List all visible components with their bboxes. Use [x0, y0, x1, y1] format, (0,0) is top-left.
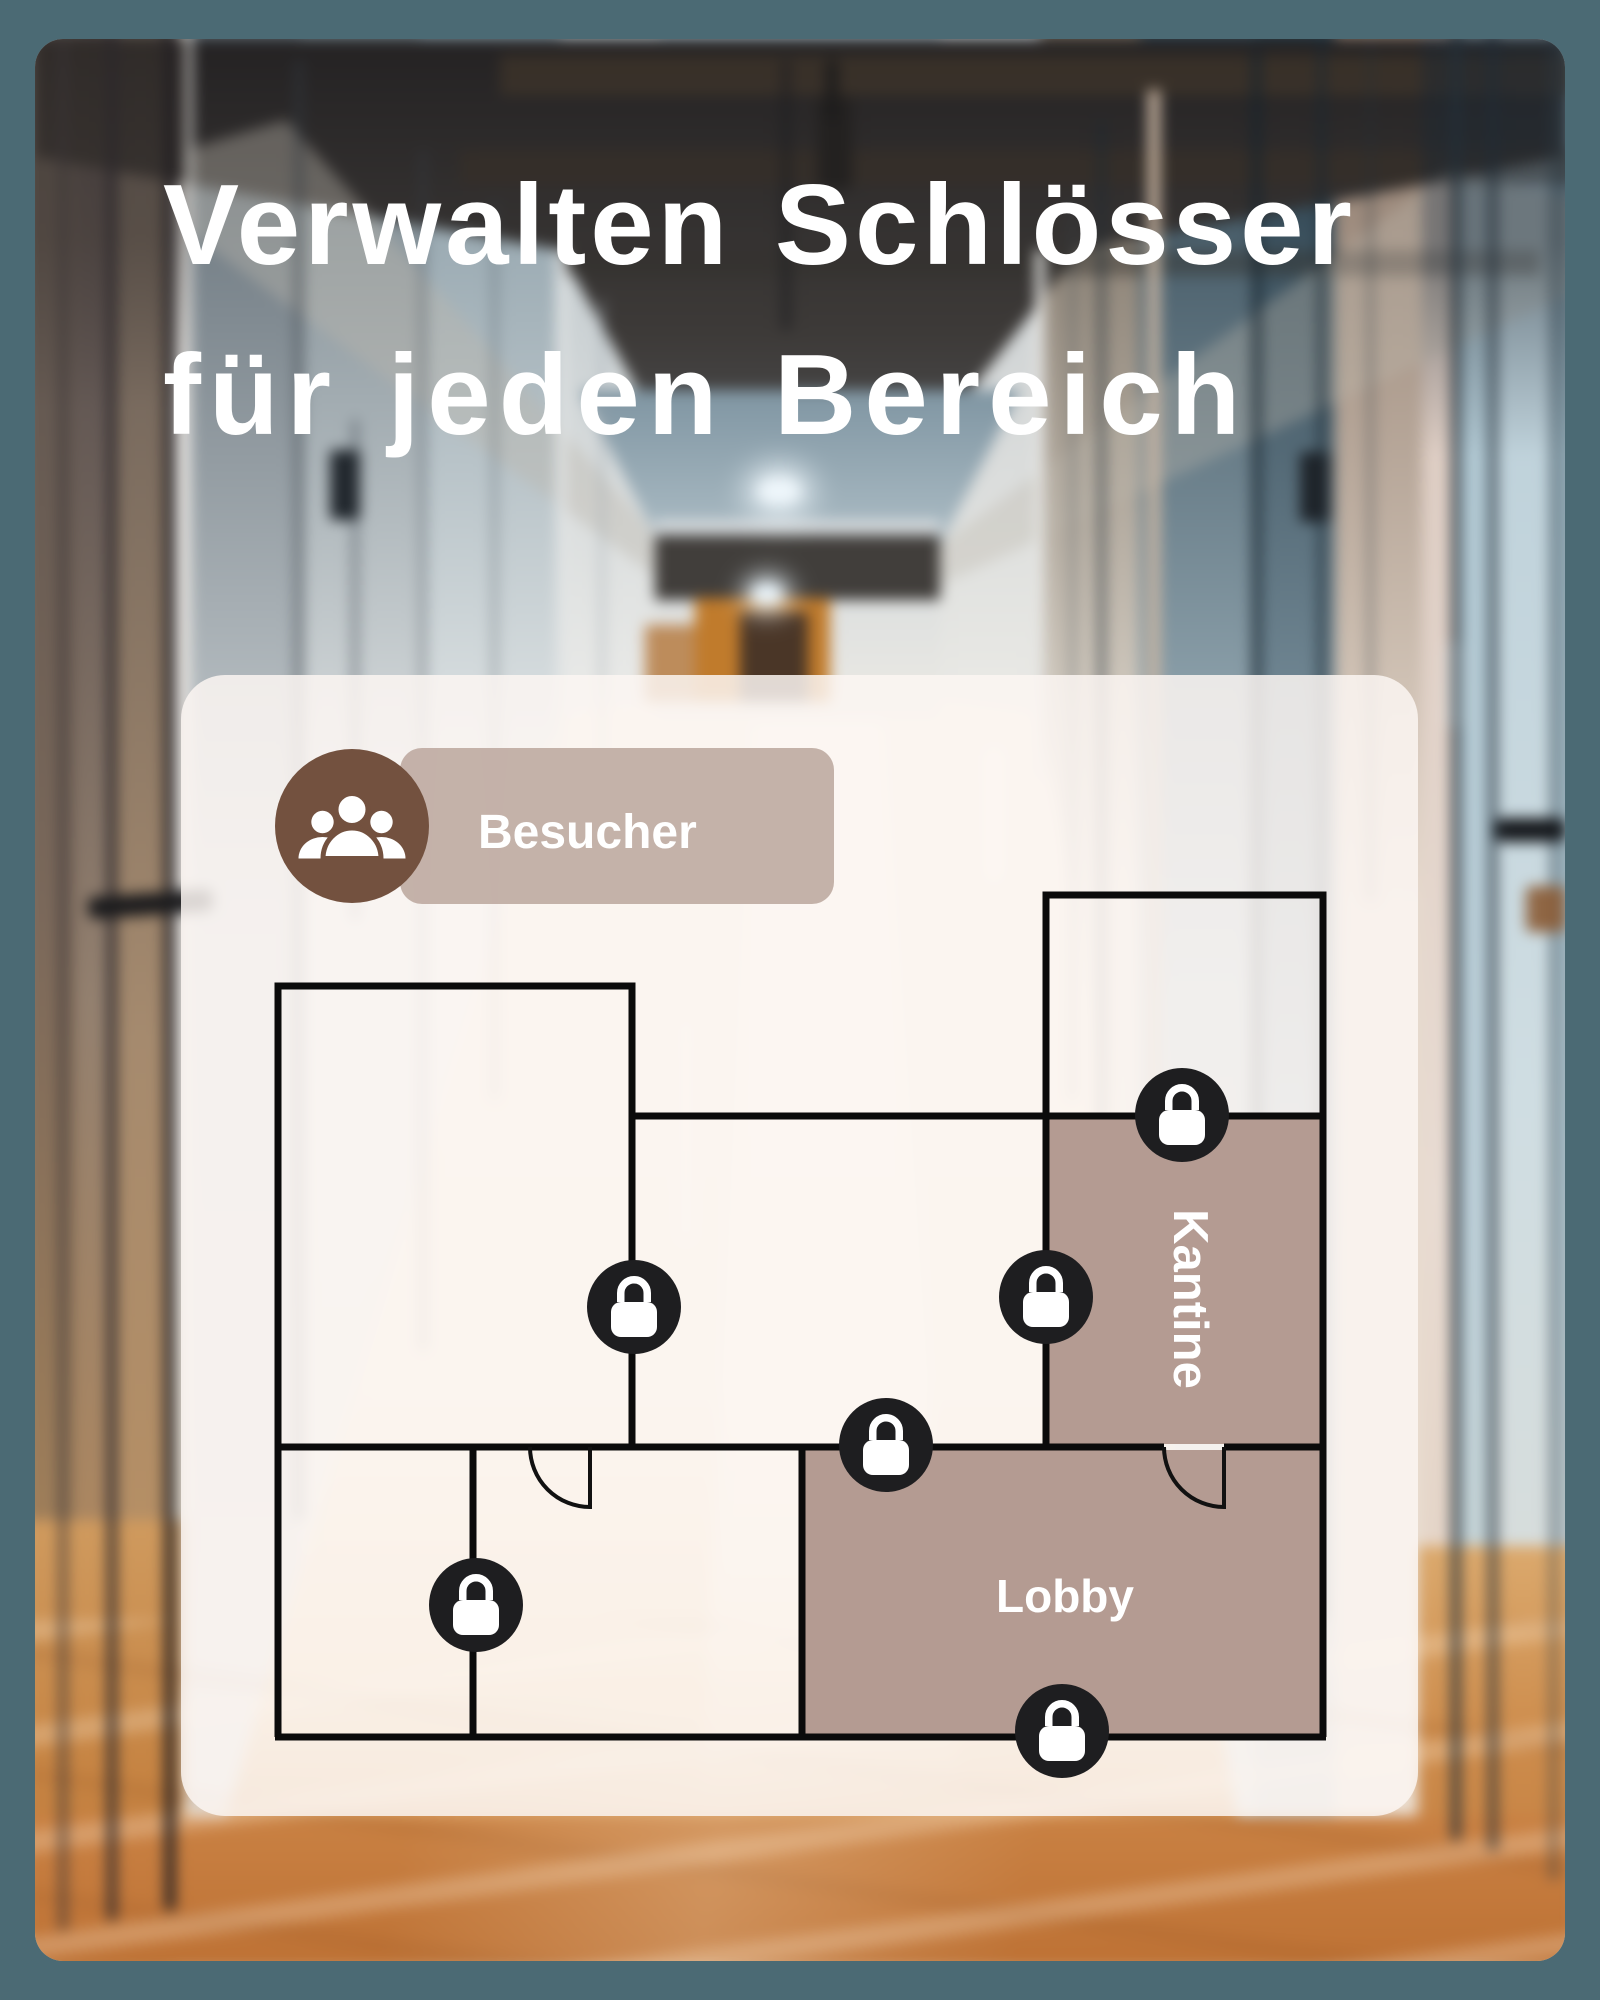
- svg-text:Kantine: Kantine: [1163, 1209, 1217, 1389]
- svg-text:Lobby: Lobby: [996, 1570, 1134, 1622]
- svg-text:Besucher: Besucher: [478, 806, 697, 859]
